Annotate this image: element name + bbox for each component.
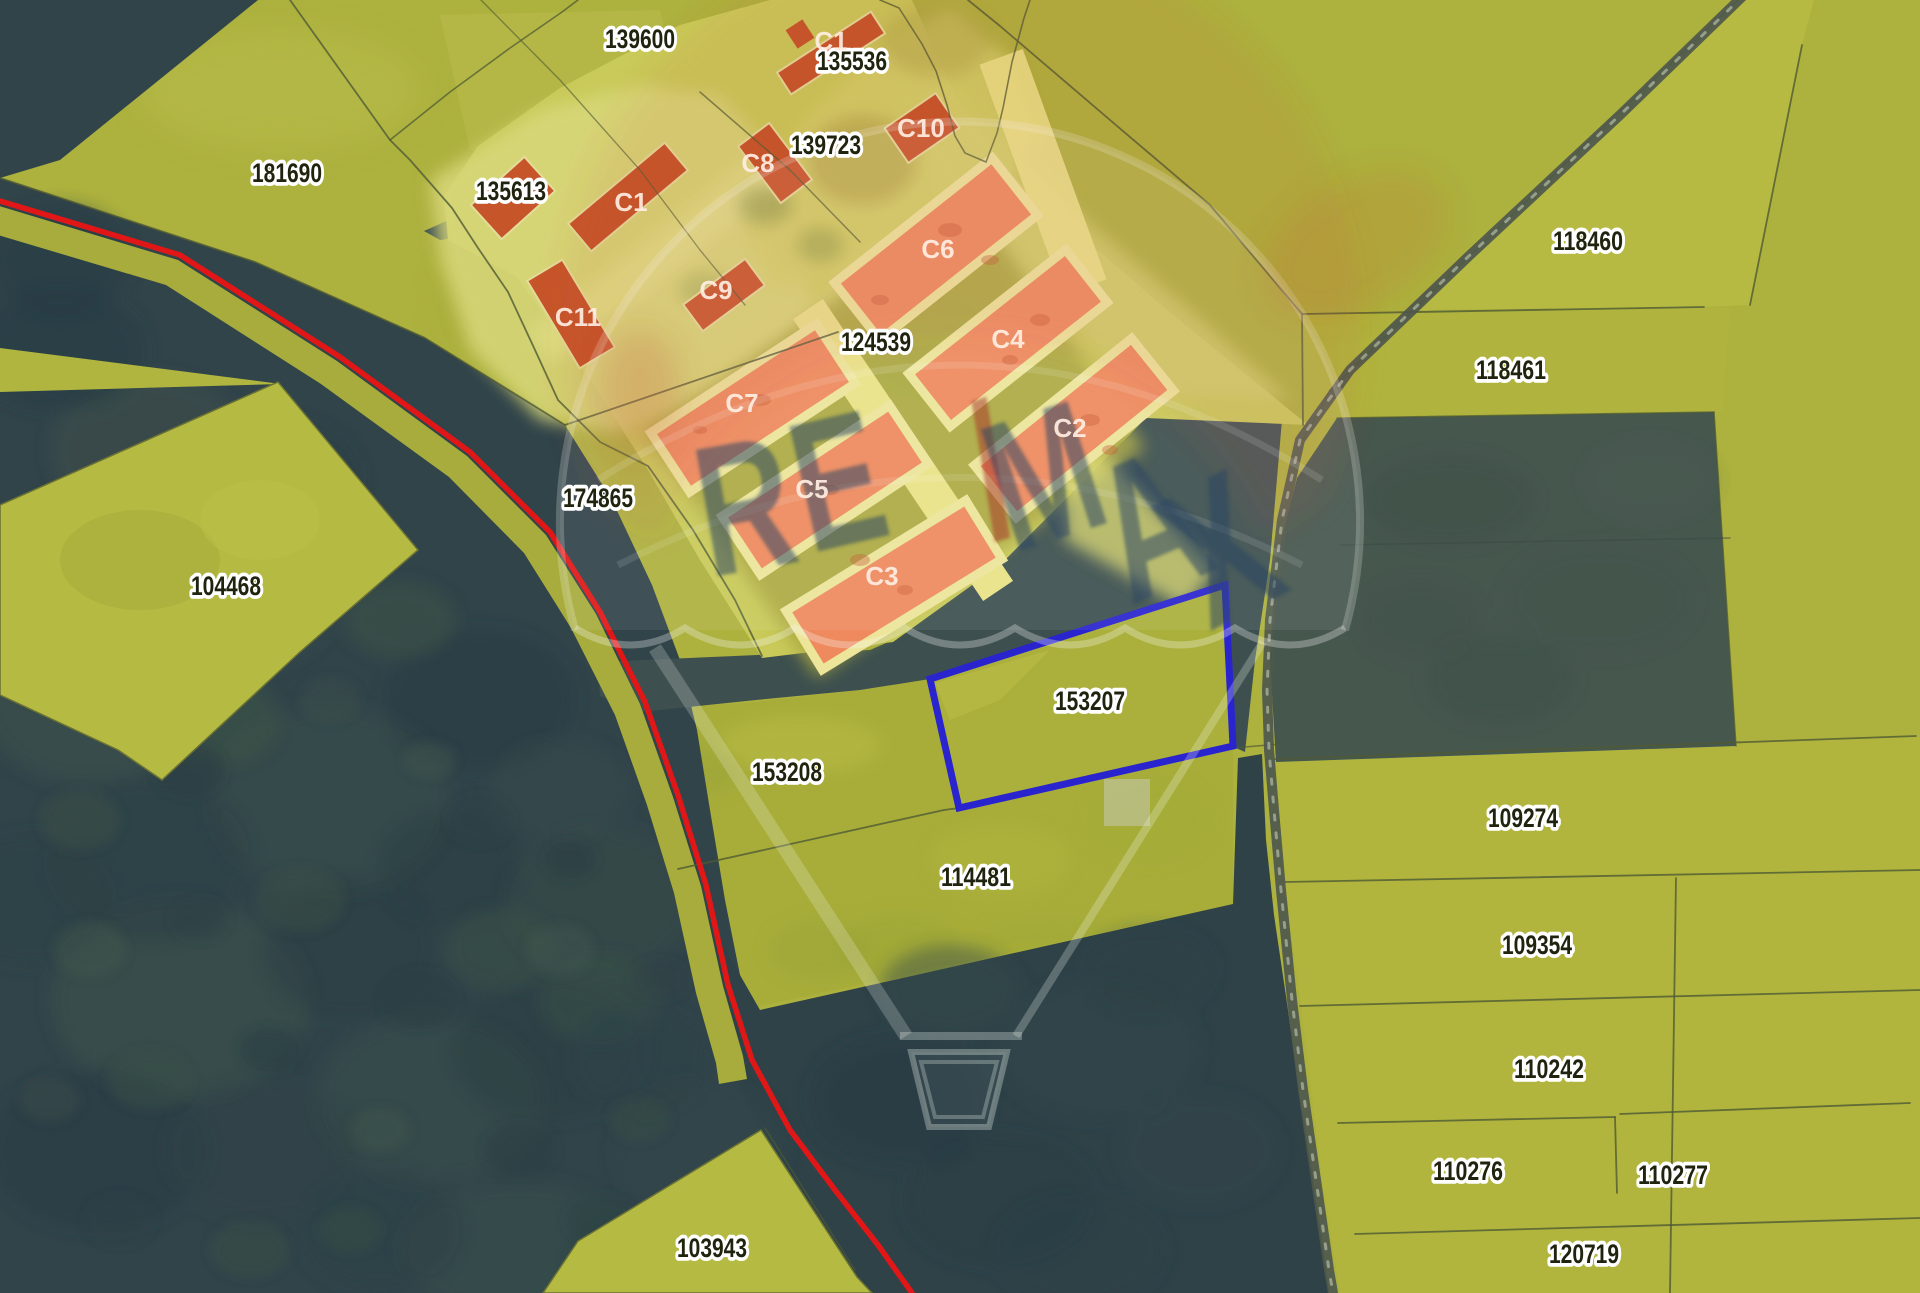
svg-text:C3: C3 [865,561,898,591]
svg-text:110276: 110276 [1433,1156,1503,1186]
svg-text:C6: C6 [921,234,954,264]
svg-text:C9: C9 [699,275,732,305]
svg-text:C5: C5 [795,474,828,504]
svg-text:118461: 118461 [1476,355,1546,385]
svg-text:118460: 118460 [1553,226,1623,256]
svg-text:174865: 174865 [563,483,633,513]
svg-text:104468: 104468 [191,571,261,601]
svg-text:139600: 139600 [605,24,675,54]
svg-text:110242: 110242 [1514,1054,1584,1084]
svg-text:135613: 135613 [476,176,546,206]
svg-text:C8: C8 [741,148,774,178]
svg-text:C1: C1 [814,26,847,56]
svg-text:C4: C4 [991,324,1025,354]
svg-text:120719: 120719 [1549,1239,1619,1269]
svg-text:153207: 153207 [1055,686,1125,716]
svg-text:C11: C11 [555,302,601,332]
svg-text:C1: C1 [614,187,647,217]
svg-text:139723: 139723 [791,130,861,160]
svg-text:114481: 114481 [941,862,1011,892]
svg-text:124539: 124539 [841,327,911,357]
svg-text:C7: C7 [725,388,758,418]
svg-text:103943: 103943 [677,1233,747,1263]
svg-text:C2: C2 [1053,413,1086,443]
svg-text:C10: C10 [897,113,945,143]
svg-text:110277: 110277 [1638,1160,1708,1190]
svg-text:109274: 109274 [1488,803,1558,833]
svg-text:181690: 181690 [252,158,322,188]
svg-text:153208: 153208 [752,757,822,787]
svg-text:109354: 109354 [1502,930,1572,960]
